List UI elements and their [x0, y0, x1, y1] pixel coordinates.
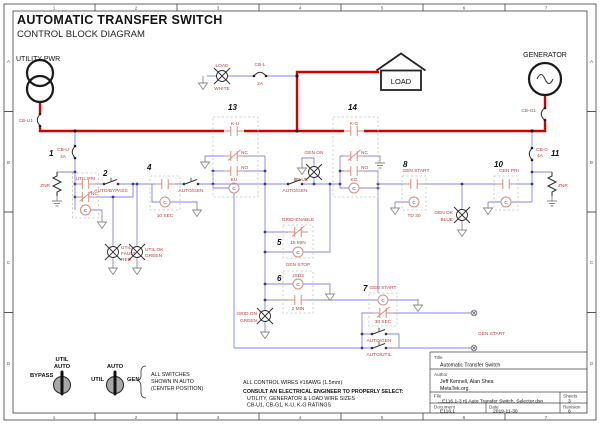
frame-col: 5: [381, 5, 384, 10]
cb-g1-breaker-icon: [541, 107, 546, 122]
lamp-name: GRID ON: [236, 311, 257, 317]
ground-icon: [414, 299, 423, 312]
lamp-color: BLUE: [440, 217, 453, 223]
date-value: 2019-11-30: [493, 409, 518, 415]
coil-letter: C: [412, 200, 416, 205]
frame-row: B: [590, 160, 593, 165]
lamp-name: UTIL OK: [145, 247, 164, 253]
lamp-icon: [306, 164, 322, 180]
auto-gen-switch-icon: [183, 178, 200, 186]
no-contact-icon: [496, 179, 516, 189]
frame-row: C: [7, 260, 11, 265]
ground-icon: [109, 262, 118, 275]
lamp-color: BLUE: [295, 177, 308, 183]
frame-col: 5: [381, 415, 384, 420]
coil-letter: C: [84, 208, 88, 213]
section-13: 13 K-U NC NO KU C: [201, 103, 259, 197]
title-value: Automatic Transfer Switch: [440, 363, 500, 369]
nc-label: NC: [241, 150, 248, 156]
legend-note: (CENTER POSITION): [151, 386, 203, 392]
generator-label: GENERATOR: [523, 52, 567, 59]
frame-col: 4: [299, 5, 302, 10]
coil-letter: C: [296, 282, 300, 287]
util-label: UTIL: [91, 377, 104, 383]
fuse-name: CB-L: [255, 62, 266, 68]
coil-name: KU: [231, 177, 238, 183]
fuse-icon: [253, 72, 268, 77]
sheets-label: Sheets: [563, 394, 578, 399]
generator-icon: [529, 63, 561, 95]
timer-label: TD 30: [407, 213, 420, 219]
ground-icon: [298, 162, 307, 175]
section-num: 14: [348, 103, 357, 112]
ground-icon: [193, 204, 202, 217]
ground-icon: [458, 224, 467, 237]
auto-label: AUTO: [54, 364, 71, 370]
section-num: 13: [228, 103, 237, 112]
relay-label: GEN PRI: [499, 168, 519, 174]
ground-icon: [201, 156, 210, 169]
lamp-icon: [454, 207, 470, 223]
znr-label: ZNR: [558, 183, 568, 189]
relay-label: GEN START: [402, 168, 429, 174]
note-ratings: CB-U1, CB-G1, K-U, K-G RATINGS: [247, 403, 332, 409]
lamp-color: RED: [121, 257, 132, 263]
note-wires: ALL CONTROL WIRES #16AWG (1.5mm): [243, 380, 342, 386]
znr-label: ZNR: [40, 183, 50, 189]
relay-label: GEN STOP: [286, 262, 311, 268]
section-num: 10: [494, 160, 503, 169]
cb-u1-label: CB-U1: [19, 118, 34, 124]
section-num: 6: [277, 274, 282, 283]
load-house: LOAD: [377, 54, 426, 91]
lamp-color: GREEN: [240, 318, 258, 324]
frame-row: C: [590, 260, 594, 265]
control-wires: [57, 76, 552, 348]
coil-letter: C: [163, 200, 167, 205]
frame-col: 6: [463, 5, 466, 10]
znr-right: ZNR: [547, 172, 568, 206]
frame-col: 7: [545, 5, 548, 10]
legend-note: SHOWN IN AUTO: [151, 379, 194, 385]
schematic-sheet: 1 2 3 4 5 6 7 1 2 3 4 5 6 7 A B C D A B …: [0, 0, 600, 424]
revision-value: 6: [568, 409, 571, 415]
lamp-icon: [105, 244, 121, 260]
frame-col: 3: [217, 5, 220, 10]
auto-bypass-label: AUTO/BYPASS: [94, 188, 127, 194]
no-contact-icon: [155, 179, 175, 189]
timer-label: 15 MIN: [290, 240, 306, 246]
rotary-knob-icon: [107, 372, 124, 394]
ground-icon: [391, 202, 400, 215]
frame-col: 2: [135, 415, 138, 420]
frame-col: 6: [463, 415, 466, 420]
frame-row: A: [7, 59, 11, 64]
frame-col: 3: [217, 415, 220, 420]
timed-contact-icon: [288, 226, 308, 237]
connector-icon: [471, 345, 477, 351]
lamp-color: WHITE: [214, 86, 229, 92]
relay-label: UTIL PRI: [76, 176, 96, 182]
no-contact-icon: [404, 179, 424, 189]
earth-ground-icon: [52, 196, 62, 206]
cb-u1-breaker-icon: [37, 113, 41, 128]
lamp-name: GEN ON: [305, 150, 324, 156]
no-label: NO: [241, 165, 248, 171]
frame-row: A: [590, 59, 594, 64]
revision-label: Revision: [563, 405, 581, 410]
power-wires: [40, 72, 545, 131]
section-num: 4: [146, 163, 152, 172]
frame-col: 2: [135, 5, 138, 10]
util-fault-lamp: UTIL FAULT RED: [105, 244, 136, 275]
section-8: 8 GEN START C TD 30: [391, 160, 430, 219]
no-label: NO: [361, 165, 368, 171]
coil-letter: C: [504, 200, 508, 205]
nc-label: NC: [361, 150, 368, 156]
coil-letter: C: [381, 298, 385, 303]
document-value: E116.1: [440, 409, 455, 415]
load-pilot-branch: LOAD WHITE CB-L 2A: [199, 62, 268, 92]
frame-col: 4: [299, 415, 302, 420]
frame-row: D: [7, 361, 11, 366]
section-num: 2: [102, 169, 108, 178]
lamp-name: GEN OK: [434, 210, 453, 216]
kg-power-contact-icon: [344, 126, 364, 136]
rotary-knob-icon: [54, 372, 71, 394]
lamp-name: LOAD: [215, 63, 229, 69]
lamp-icon: [257, 308, 273, 324]
section-num: 5: [277, 238, 282, 247]
lamp-color: GREEN: [145, 253, 163, 259]
ground-icon: [133, 262, 142, 275]
breaker-icon: [72, 145, 76, 160]
bypass-label: BYPASS: [30, 373, 54, 379]
util-label: UTIL: [56, 357, 69, 363]
section-7: 7 GEN START C 30 SEC: [363, 284, 423, 326]
relay-label: GRID-ENABLE: [282, 217, 315, 223]
auto-label: AUTO: [107, 364, 124, 370]
author-label: Author: [434, 372, 448, 377]
generator-source: GENERATOR CB-G1: [521, 52, 567, 121]
breaker-icon: [529, 147, 533, 162]
auto-util-label: AUTO/UTIL: [367, 352, 392, 358]
lamp-icon: [129, 244, 145, 260]
section-num: 11: [551, 149, 560, 158]
note-consult: CONSULT AN ELECTRICAL ENGINEER TO PROPER…: [243, 389, 404, 395]
auto-gen-switch-icon: [371, 328, 388, 336]
earth-ground-icon: [547, 196, 557, 206]
coil-name: KG: [351, 177, 358, 183]
notes: ALL CONTROL WIRES #16AWG (1.5mm) CONSULT…: [243, 380, 404, 409]
section-11: CB-G 4A 11: [529, 147, 560, 162]
relay-sublabel: JSD3: [292, 273, 304, 279]
gen-ok-lamp: GEN OK BLUE: [434, 207, 470, 237]
auto-gen-label: AUTO/GEN: [179, 188, 205, 194]
frame-row: D: [590, 361, 594, 366]
ku-power-contact-icon: [224, 126, 244, 136]
relay-label: GEN START: [369, 285, 396, 291]
utility-source: UTILITY PWR CB-U1: [16, 56, 60, 127]
timer-label: 30 SEC: [375, 319, 392, 325]
transformer-icon: [27, 60, 53, 102]
breaker-name: CB-U: [57, 147, 69, 153]
load-label: LOAD: [391, 77, 412, 86]
timer-label: 2 MIN: [292, 306, 305, 312]
util-ok-lamp: UTIL OK GREEN: [129, 244, 164, 275]
fuse-rating: 2A: [257, 81, 264, 87]
section-num: 1: [49, 149, 54, 158]
earth-ground-icon: [375, 158, 385, 168]
no-contact-icon: [288, 295, 308, 305]
coil-letter: C: [352, 186, 356, 191]
title-label: Title: [434, 355, 443, 360]
lamp-icon: [214, 68, 230, 84]
auto-gen-label: AUTO/GEN: [283, 188, 309, 194]
legend-note: ALL SWITCHES: [151, 372, 190, 378]
file-label: File: [434, 394, 442, 399]
gen-start-output-label: GEN START: [478, 331, 505, 337]
gen-on-lamp: GEN ON BLUE: [295, 150, 324, 183]
relay-label: K-U: [231, 121, 240, 127]
frame-col: 1: [53, 5, 56, 10]
drawing-frame: 1 2 3 4 5 6 7 1 2 3 4 5 6 7 A B C D A B …: [4, 4, 596, 420]
coil-letter: C: [232, 186, 236, 191]
ground-icon: [326, 288, 335, 301]
frame-row: B: [7, 160, 10, 165]
cb-g1-label: CB-G1: [521, 108, 536, 114]
breaker-name: CB-G: [536, 147, 548, 153]
page-title: AUTOMATIC TRANSFER SWITCH: [17, 13, 223, 27]
org-value: MetaTek.org: [440, 386, 469, 392]
section-2: 2 UTIL PRI NC C: [73, 169, 109, 229]
section-10: 10 GEN PRI C: [484, 160, 519, 215]
page-subtitle: CONTROL BLOCK DIAGRAM: [17, 29, 145, 40]
auto-bypass-switch-icon: [103, 178, 120, 186]
coil-letter: C: [296, 250, 300, 255]
section-6: GEN STOP JSD3 6 C 2 MIN: [277, 262, 335, 313]
breaker-rating: 4A: [60, 154, 67, 160]
title-block: Title Automatic Transfer Switch Author J…: [430, 352, 587, 415]
section-num: 7: [363, 284, 368, 293]
frame-col: 1: [53, 415, 56, 420]
grid-on-lamp: GRID ON GREEN: [236, 308, 273, 339]
frame-col: 7: [545, 415, 548, 420]
section-1: 1 CB-U 4A: [49, 145, 76, 160]
ground-icon: [484, 202, 493, 215]
timed-contact-icon: [373, 307, 393, 318]
connector-icon: [471, 310, 477, 316]
ground-icon: [199, 77, 208, 90]
znr-left: ZNR: [40, 172, 62, 206]
varistor-icon: [548, 172, 556, 196]
author-value: Jeff Kennell, Alan Shea: [440, 379, 494, 385]
lamp-name: UTIL: [121, 245, 132, 251]
timer-label: 10 SEC: [157, 213, 174, 219]
note-sizes: UTILITY, GENERATOR & LOAD WIRE SIZES: [247, 396, 355, 402]
ground-icon: [261, 326, 270, 339]
varistor-icon: [53, 172, 61, 196]
switch-legend: BYPASS UTIL AUTO AUTO UTIL GEN ALL SWITC…: [30, 357, 203, 398]
section-num: 8: [403, 160, 408, 169]
breaker-rating: 4A: [537, 153, 544, 159]
